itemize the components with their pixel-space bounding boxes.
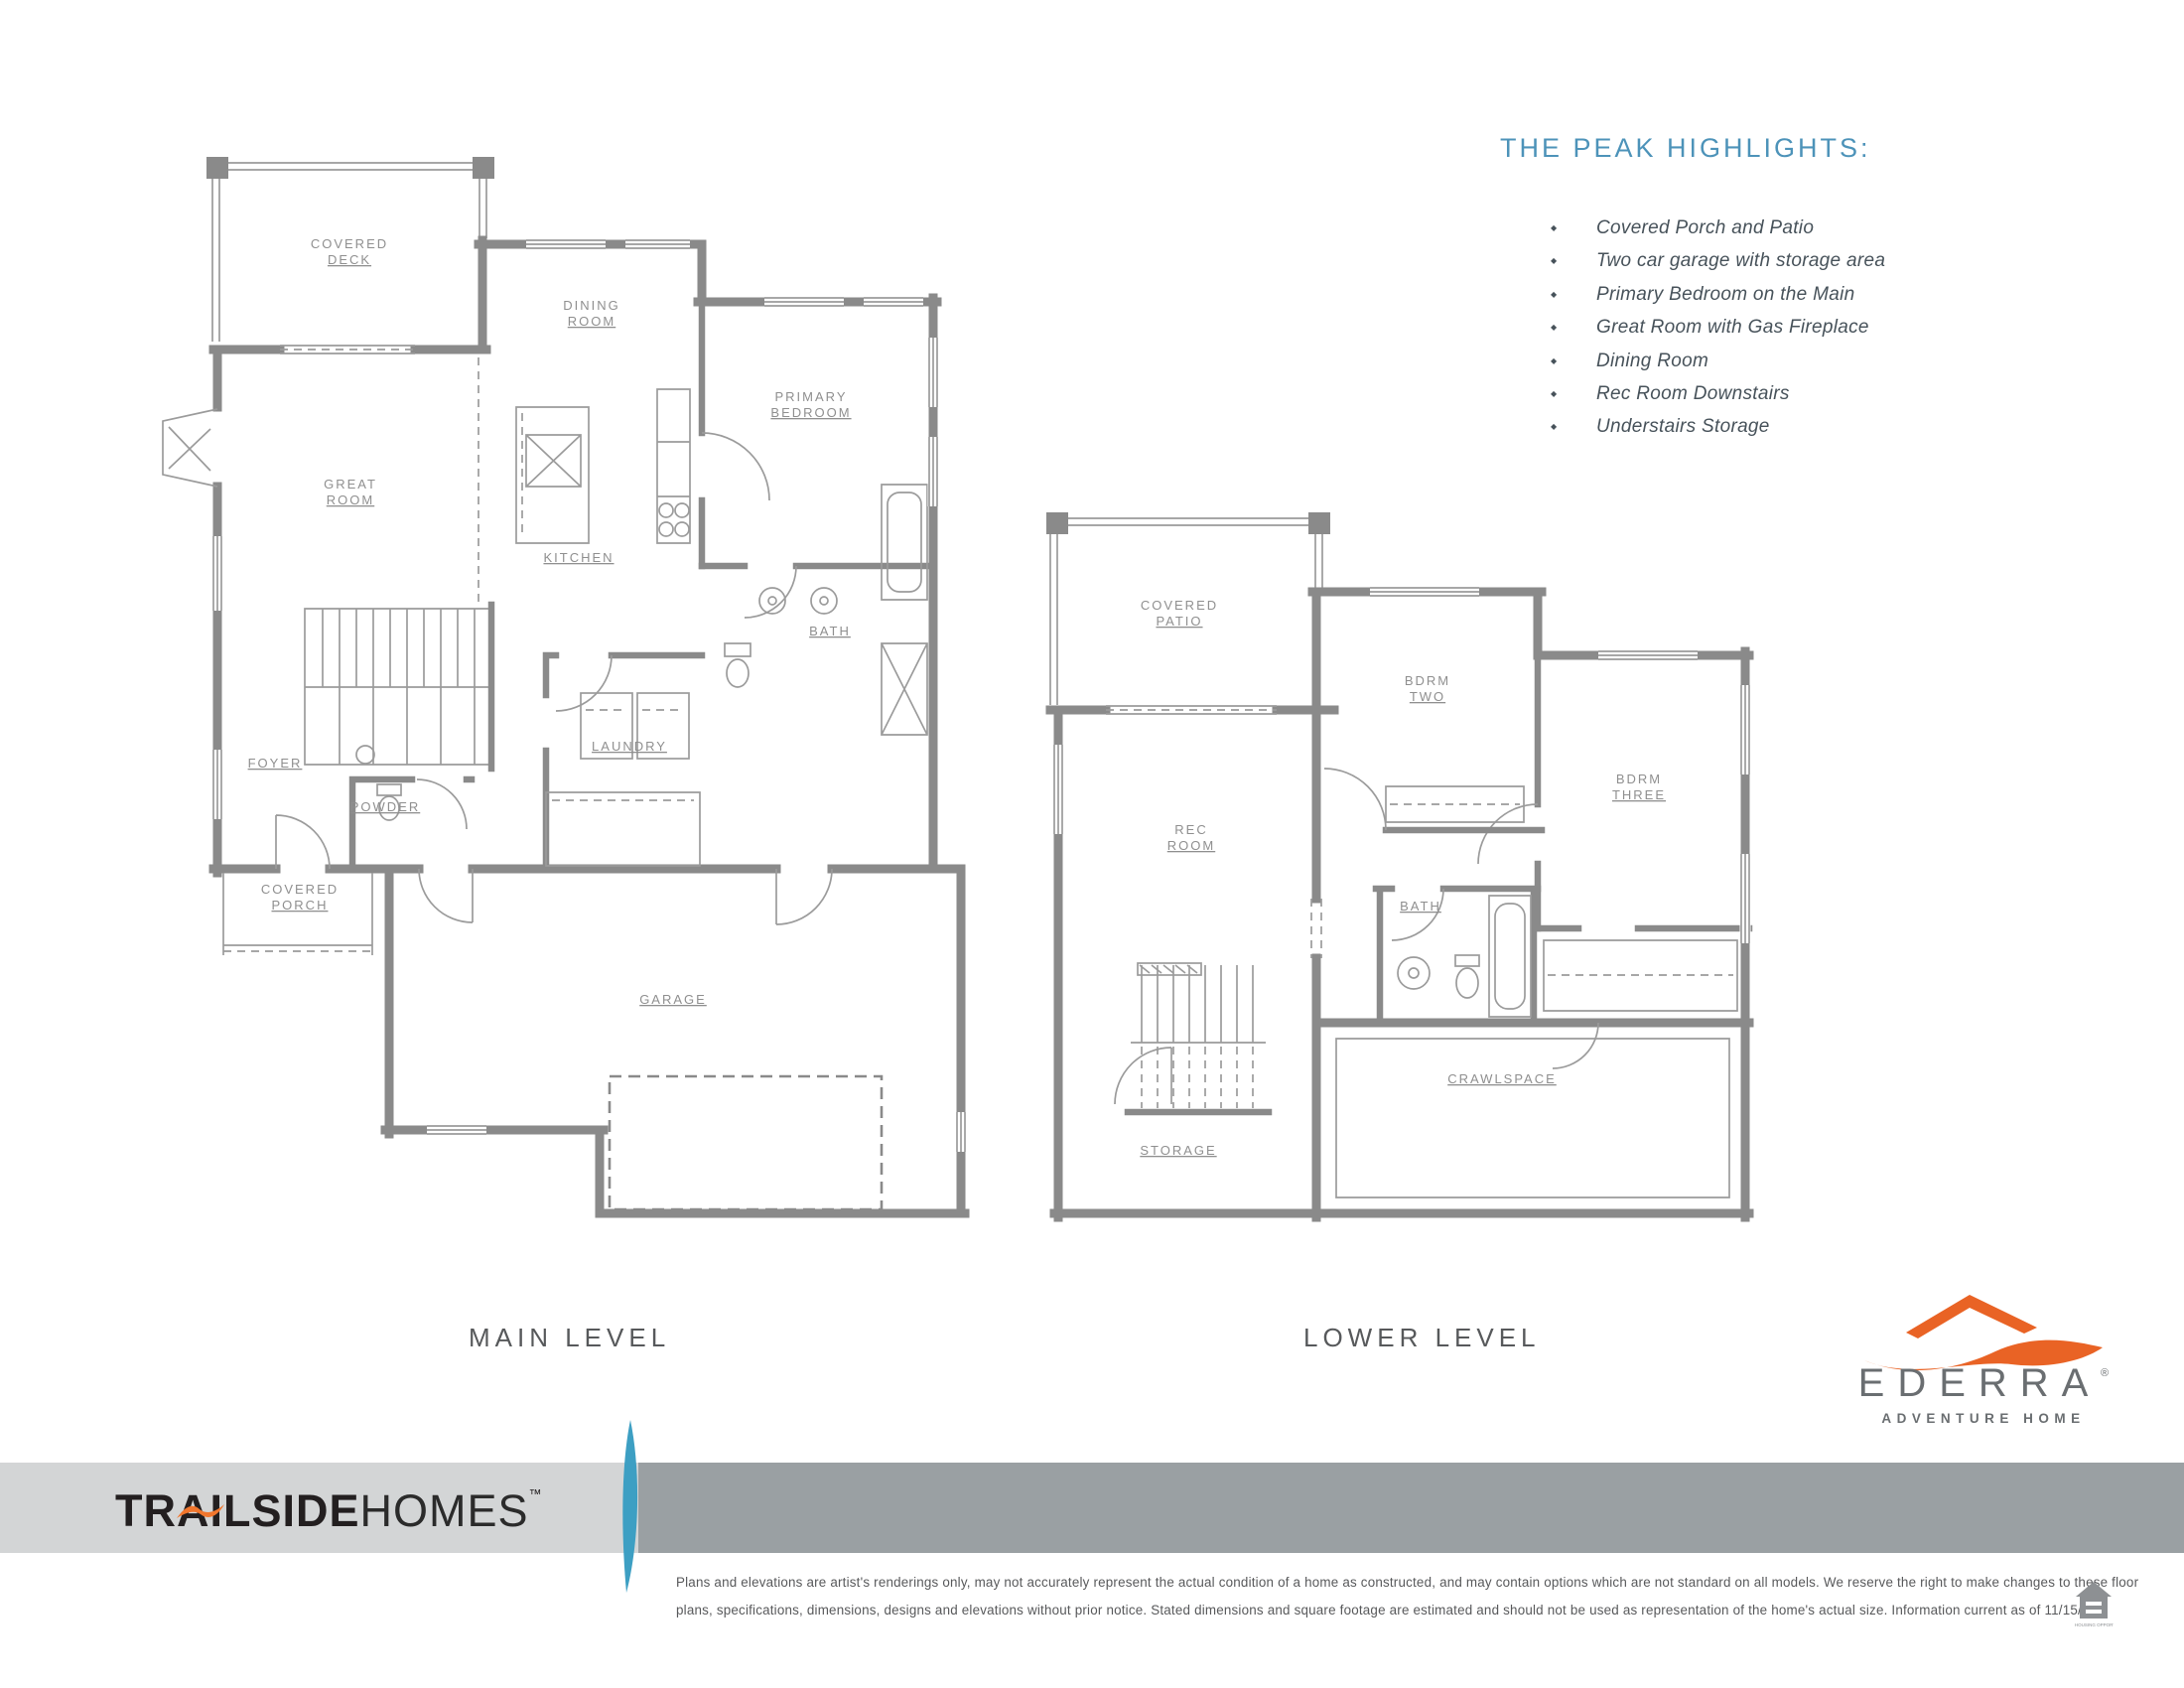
highlight-item: Primary Bedroom on the Main — [1596, 278, 1885, 311]
registered-mark-icon: ® — [2101, 1367, 2109, 1379]
footer-divider-accent-icon — [617, 1420, 643, 1593]
ederra-tagline: ADVENTURE HOME — [1881, 1411, 2085, 1426]
room-label-lower-bath: BATH — [1400, 899, 1441, 914]
highlights-title: THE PEAK HIGHLIGHTS: — [1500, 133, 1871, 164]
room-label-rec-room-2: ROOM — [1167, 838, 1215, 853]
room-label-garage: GARAGE — [639, 992, 707, 1007]
lower-level-windows — [1054, 588, 1749, 943]
room-label-primary-bedroom-2: BEDROOM — [770, 405, 851, 420]
ederra-logo: EDERRA ® ADVENTURE HOME — [1848, 1285, 2126, 1430]
room-label-primary-bedroom: PRIMARY — [775, 389, 848, 404]
lower-level-walls — [1046, 512, 1749, 1217]
highlights-list: Covered Porch and Patio Two car garage w… — [1596, 211, 1885, 444]
trailside-wordmark-bold: TRAILSIDE — [115, 1485, 360, 1536]
footer-bar-dark — [638, 1463, 2184, 1553]
room-label-foyer: FOYER — [248, 756, 303, 771]
main-level-floorplan: COVERED DECK DINING ROOM GREAT ROOM KITC… — [129, 99, 983, 1251]
room-label-covered-patio: COVERED — [1141, 598, 1218, 613]
room-label-crawlspace: CRAWLSPACE — [1447, 1071, 1557, 1086]
equal-housing-caption: EQUAL HOUSING OPPORTUNITY — [2074, 1622, 2114, 1627]
room-label-great-room: GREAT — [324, 477, 377, 492]
floorplan-brochure-page: COVERED DECK DINING ROOM GREAT ROOM KITC… — [0, 0, 2184, 1688]
disclaimer-line-2: plans, specifications, dimensions, desig… — [676, 1603, 2097, 1618]
main-level-walls — [163, 157, 965, 1213]
ederra-wordmark: EDERRA — [1858, 1361, 2102, 1405]
lower-level-floorplan: COVERED PATIO BDRM TWO REC ROOM BDRM THR… — [1042, 506, 1797, 1261]
room-label-covered-deck: COVERED — [311, 236, 388, 251]
room-label-bdrm-three: BDRM — [1616, 772, 1662, 786]
room-label-covered-patio-2: PATIO — [1156, 614, 1202, 629]
trailside-wordmark-light: HOMES — [360, 1485, 529, 1536]
room-label-bath: BATH — [809, 624, 851, 638]
trademark-icon: ™ — [529, 1486, 542, 1501]
room-label-covered-deck-2: DECK — [328, 252, 371, 267]
room-label-covered-porch: COVERED — [261, 882, 339, 897]
room-label-bdrm-two-2: TWO — [1410, 689, 1445, 704]
ederra-mountain-icon — [1864, 1295, 2103, 1370]
lower-level-room-labels: COVERED PATIO BDRM TWO REC ROOM BDRM THR… — [1140, 598, 1666, 1158]
room-label-bdrm-two: BDRM — [1405, 673, 1450, 688]
room-label-great-room-2: ROOM — [327, 492, 374, 507]
main-level-room-labels: COVERED DECK DINING ROOM GREAT ROOM KITC… — [248, 236, 852, 1007]
equal-housing-icon: EQUAL HOUSING OPPORTUNITY — [2074, 1579, 2114, 1634]
highlight-item: Dining Room — [1596, 345, 1885, 377]
highlight-item: Understairs Storage — [1596, 410, 1885, 443]
main-level-windows — [213, 240, 965, 1152]
highlight-item: Two car garage with storage area — [1596, 244, 1885, 277]
room-label-dining-2: ROOM — [568, 314, 615, 329]
trailside-mountain-icon — [177, 1501, 226, 1521]
room-label-rec-room: REC — [1174, 822, 1207, 837]
room-label-covered-porch-2: PORCH — [272, 898, 329, 913]
room-label-dining: DINING — [563, 298, 620, 313]
highlight-item: Great Room with Gas Fireplace — [1596, 311, 1885, 344]
room-label-kitchen: KITCHEN — [543, 550, 614, 565]
main-level-caption: MAIN LEVEL — [469, 1323, 670, 1353]
highlight-item: Rec Room Downstairs — [1596, 377, 1885, 410]
room-label-storage: STORAGE — [1140, 1143, 1216, 1158]
disclaimer-line-1: Plans and elevations are artist's render… — [676, 1575, 2138, 1590]
lower-level-caption: LOWER LEVEL — [1303, 1323, 1541, 1353]
room-label-laundry: LAUNDRY — [592, 739, 667, 754]
room-label-bdrm-three-2: THREE — [1612, 787, 1666, 802]
room-label-powder: POWDER — [350, 799, 421, 814]
highlight-item: Covered Porch and Patio — [1596, 211, 1885, 244]
